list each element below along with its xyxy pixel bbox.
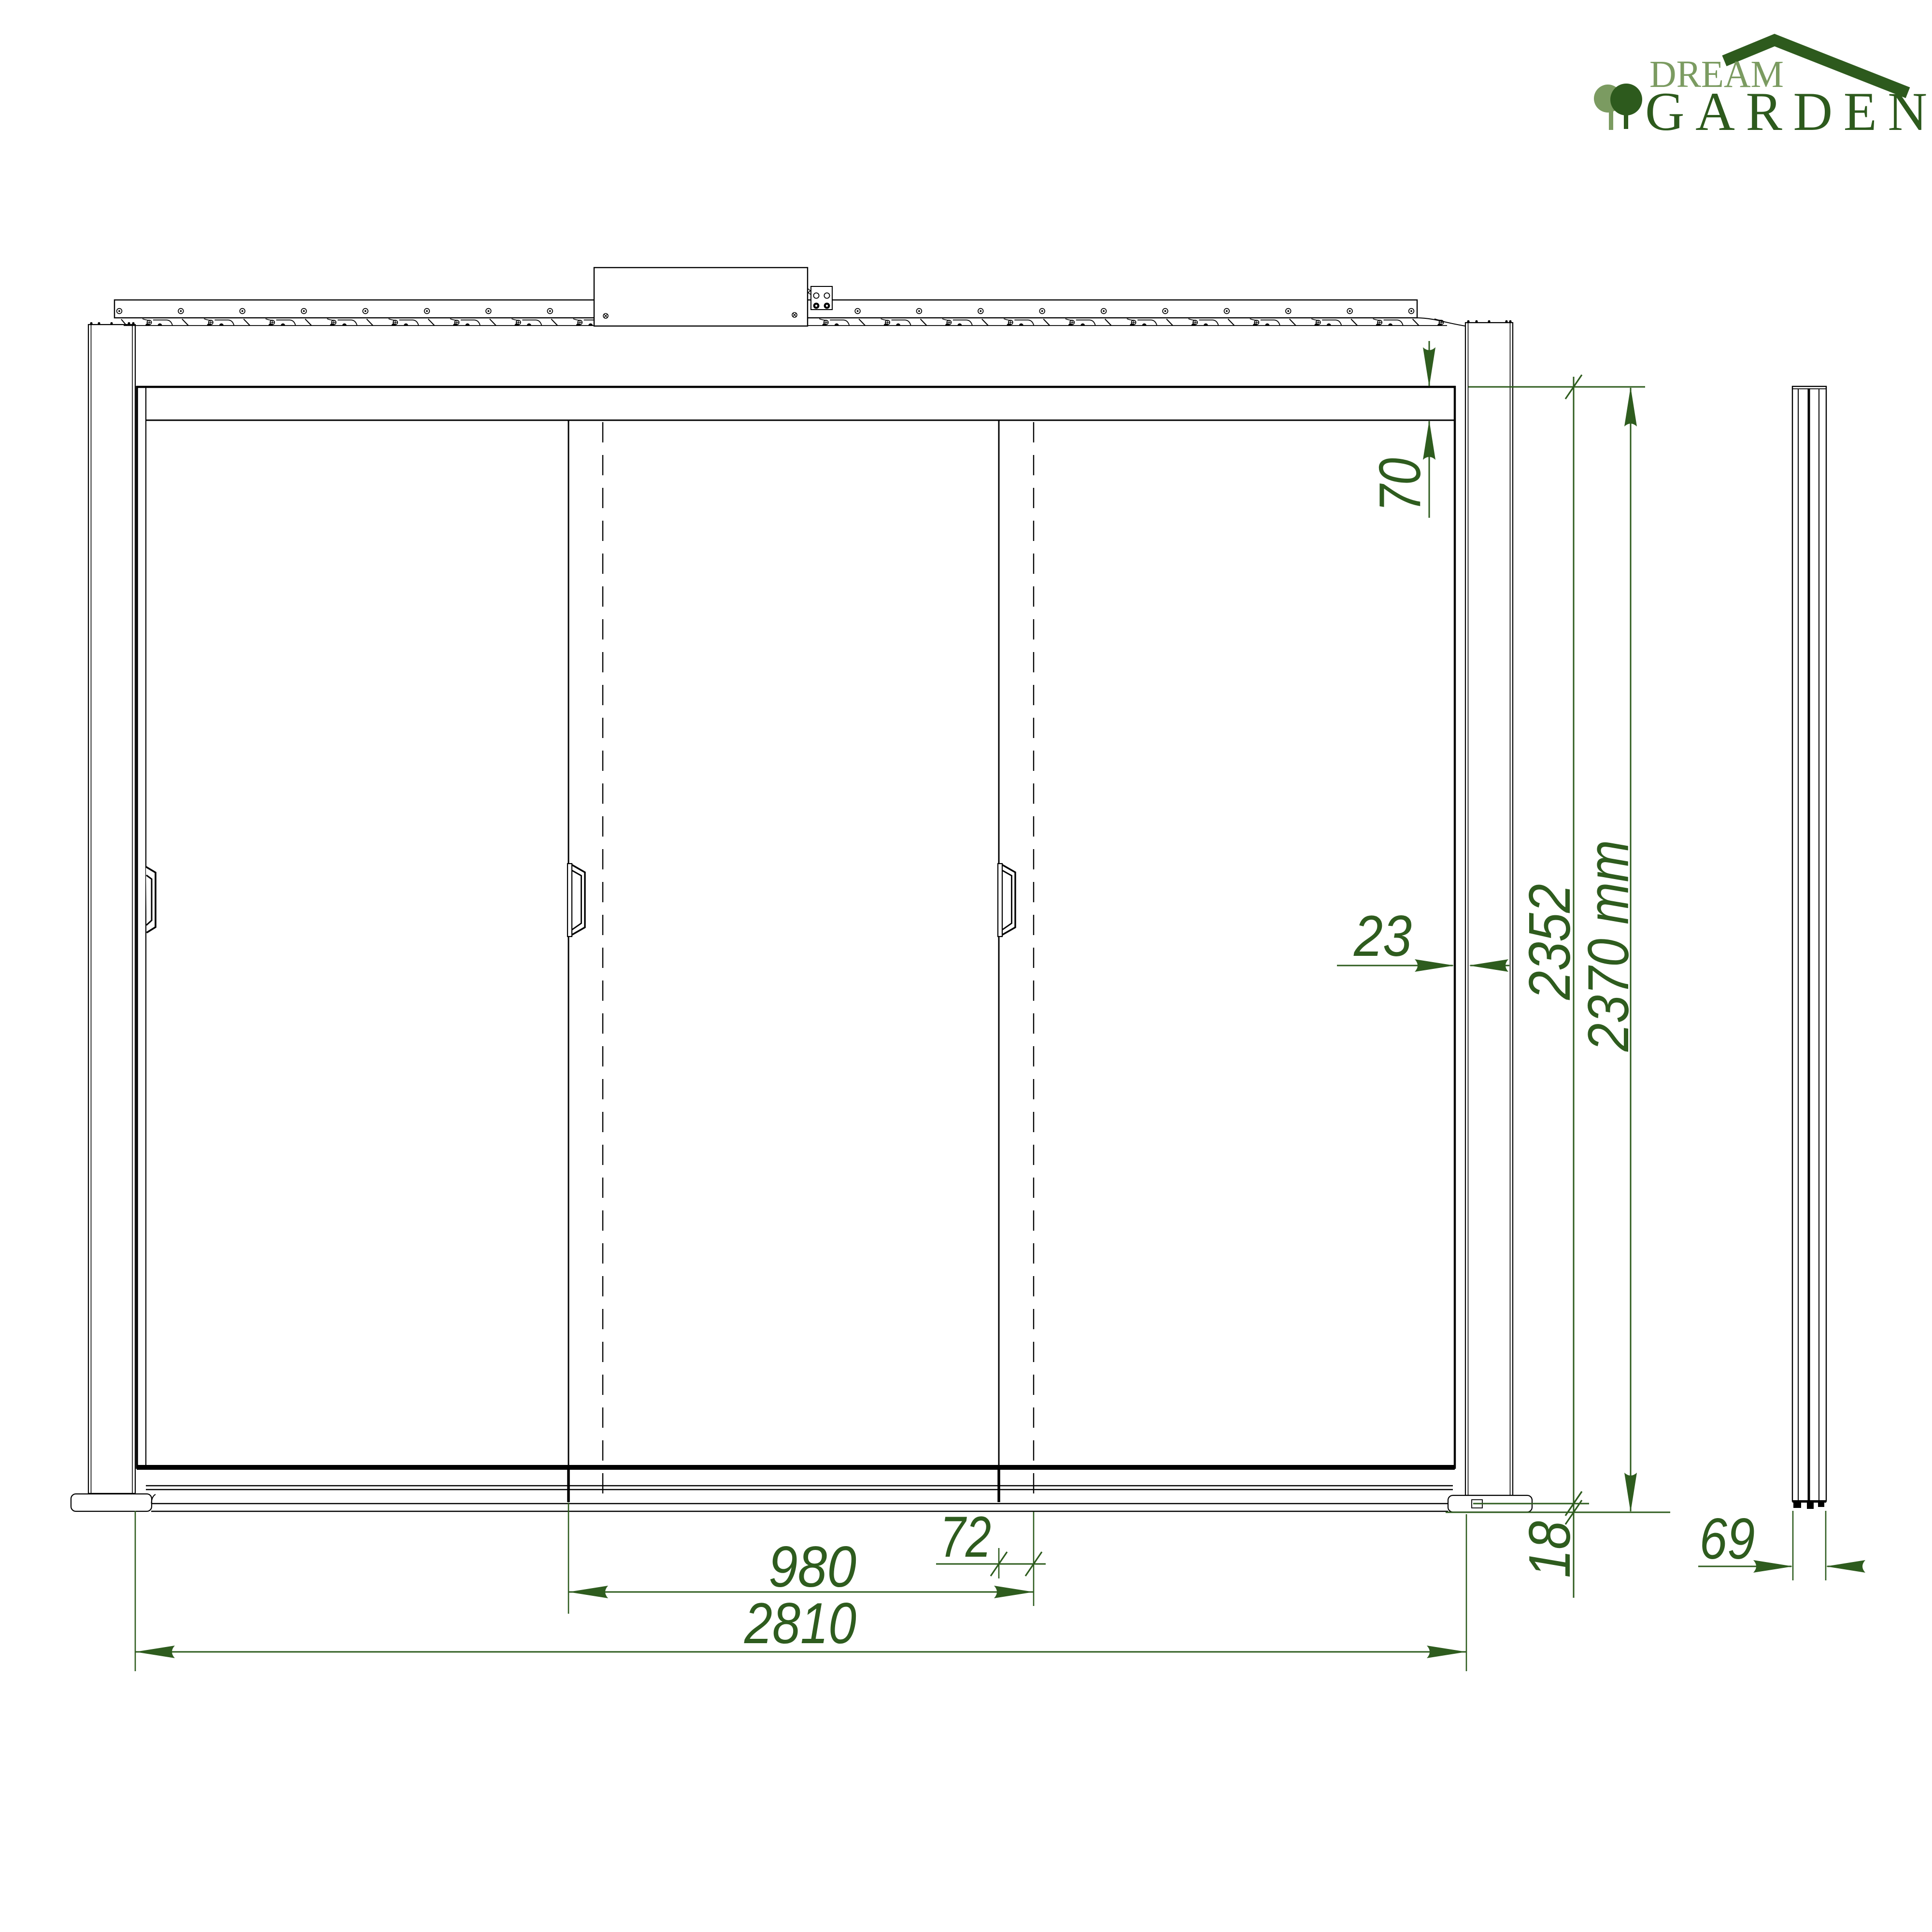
svg-text:18: 18	[1517, 1521, 1582, 1578]
svg-text:72: 72	[940, 1505, 991, 1569]
svg-text:69: 69	[1700, 1506, 1755, 1571]
svg-text:2810: 2810	[744, 1591, 856, 1656]
svg-text:980: 980	[768, 1534, 856, 1599]
svg-text:70: 70	[1367, 458, 1433, 512]
svg-text:2370 mm: 2370 mm	[1576, 840, 1641, 1052]
svg-text:2352: 2352	[1517, 884, 1582, 1000]
svg-text:23: 23	[1353, 904, 1412, 968]
